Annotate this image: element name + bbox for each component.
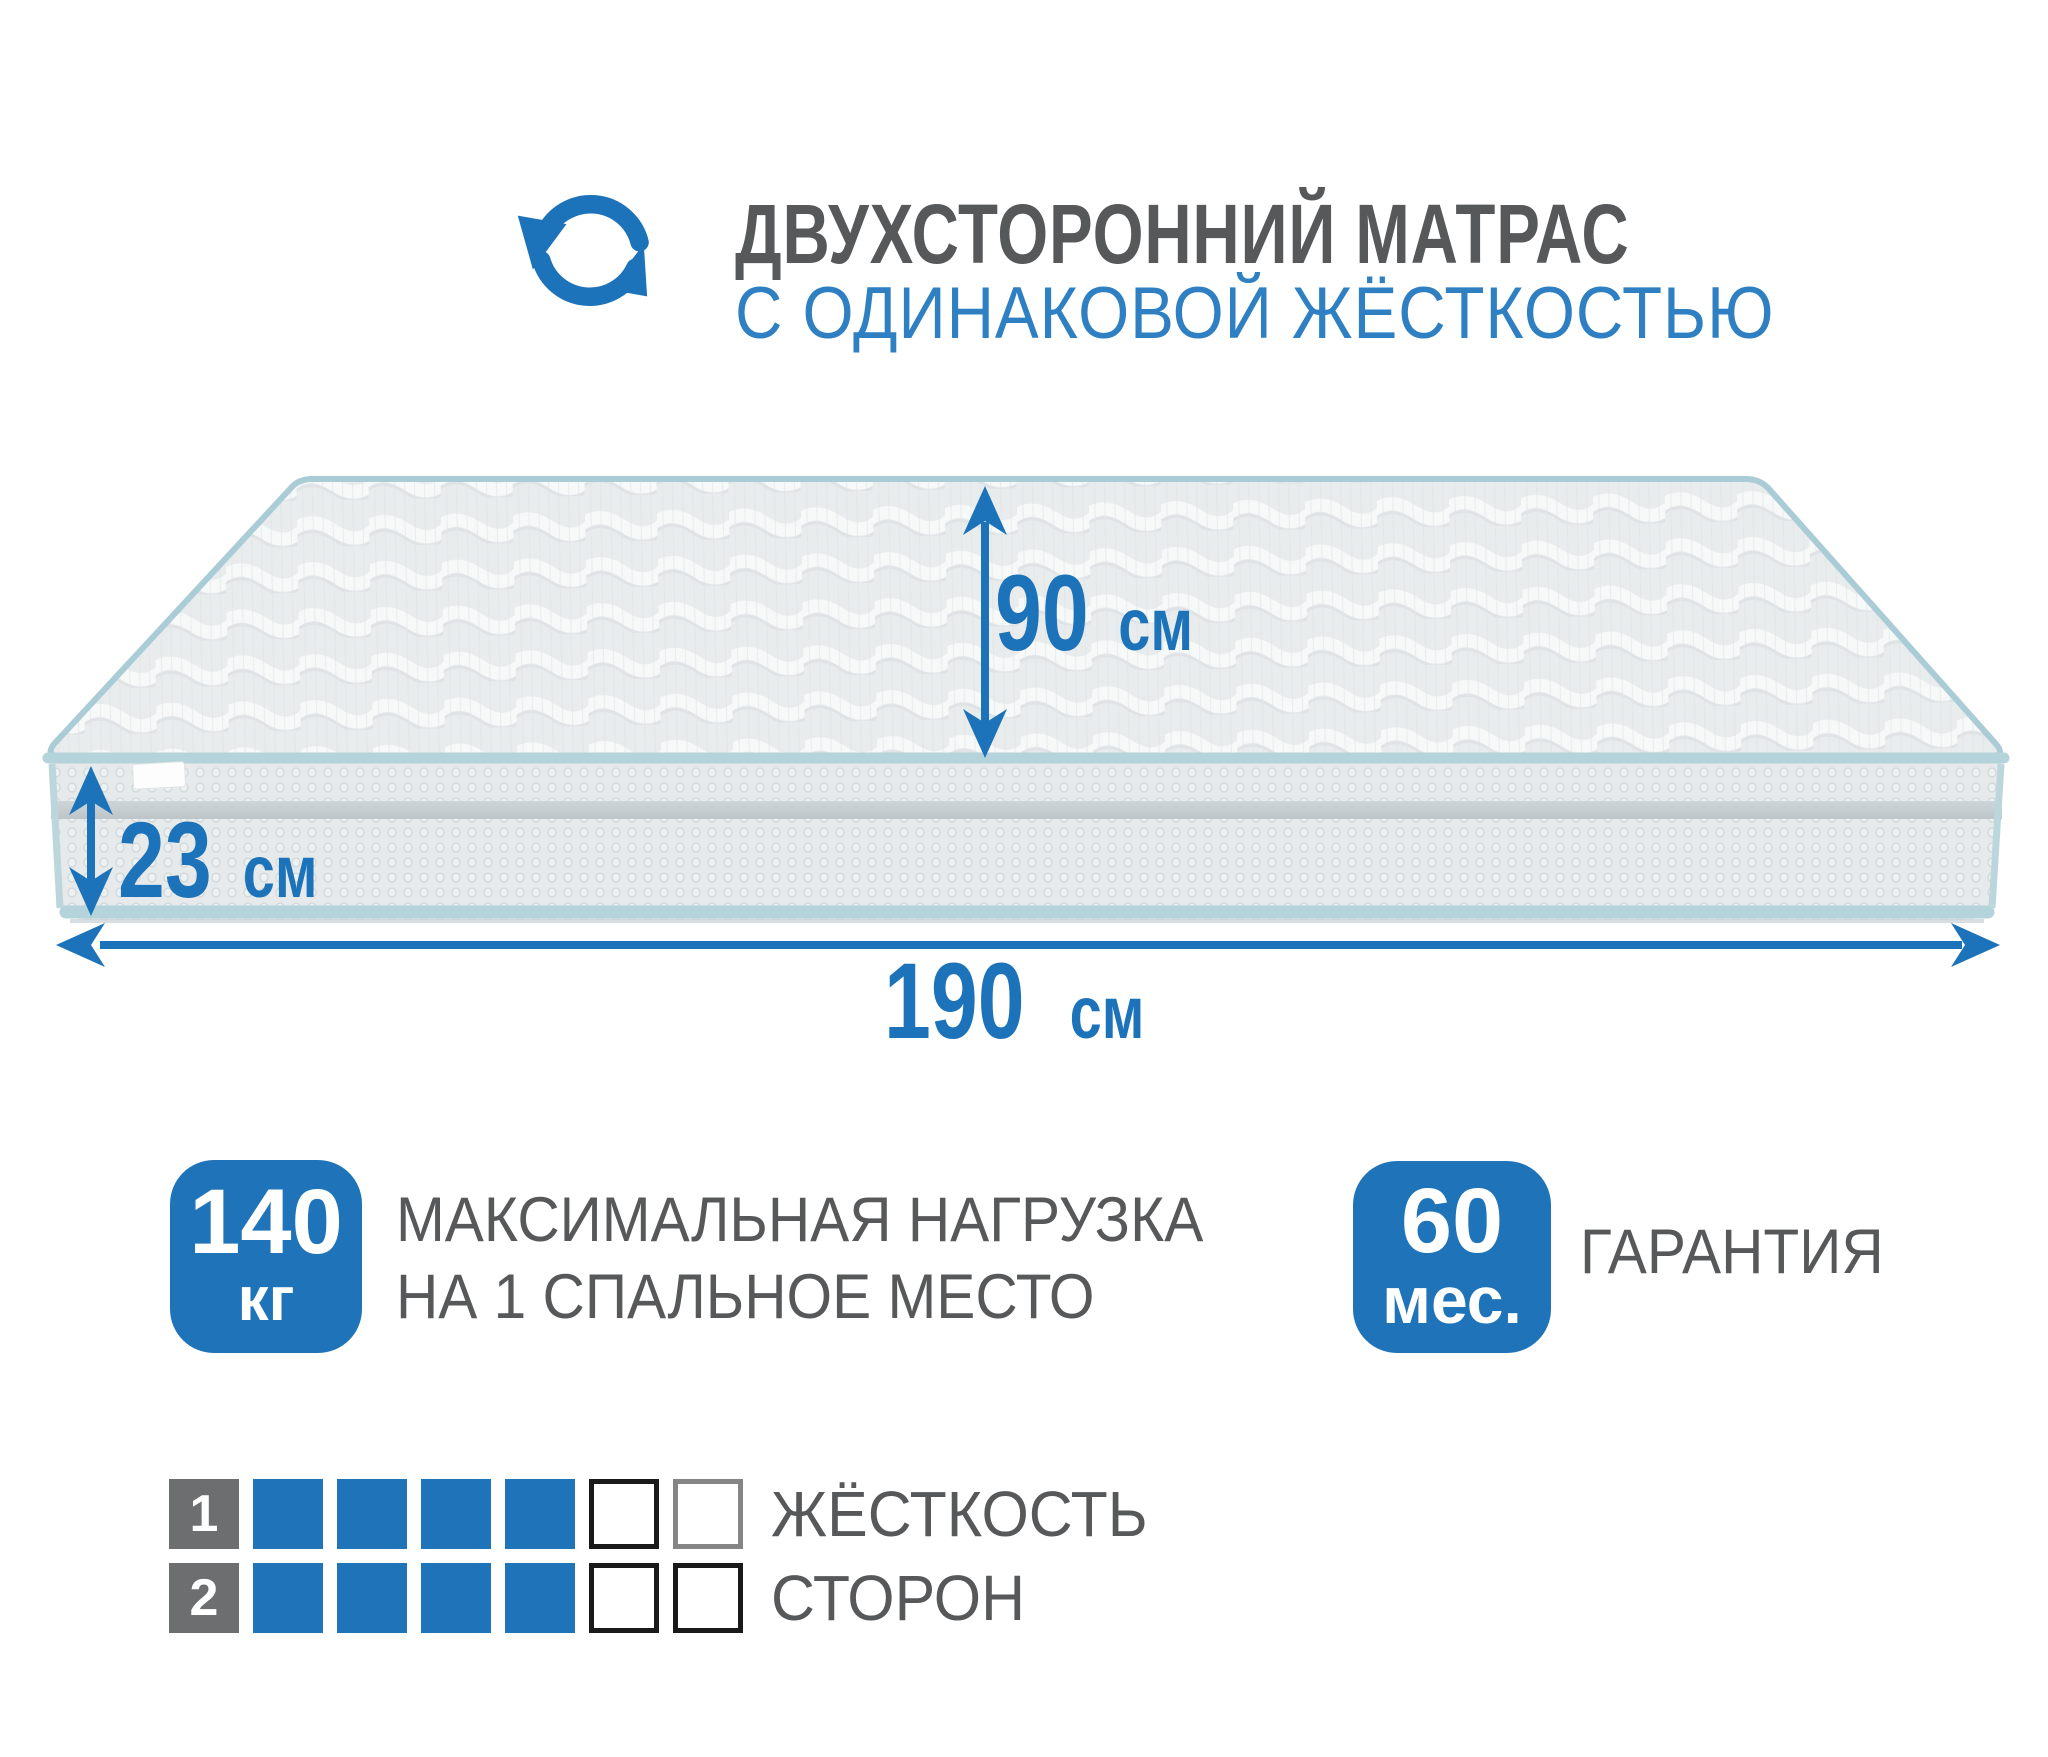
svg-text:190: 190	[884, 940, 1025, 1060]
max-load-value: 140	[189, 1182, 343, 1263]
firmness-squares	[253, 1563, 743, 1633]
svg-text:см: см	[243, 831, 318, 914]
firmness-square-filled	[421, 1479, 491, 1549]
firmness-row: 2	[169, 1563, 743, 1633]
firmness-squares	[253, 1479, 743, 1549]
warranty-unit: мес.	[1382, 1267, 1522, 1333]
page-title: ДВУХСТОРОННИЙ МАТРАС	[735, 186, 1630, 283]
firmness-square-filled	[253, 1479, 323, 1549]
firmness-square-empty	[673, 1563, 743, 1633]
svg-text:см: см	[1118, 584, 1193, 667]
mattress-label-tag	[132, 762, 185, 790]
max-load-badge: 140 кг	[170, 1160, 362, 1353]
max-load-label: МАКСИМАЛЬНАЯ НАГРУЗКА НА 1 СПАЛЬНОЕ МЕСТ…	[396, 1182, 1203, 1336]
svg-text:см: см	[1070, 972, 1145, 1055]
firmness-square-filled	[253, 1563, 323, 1633]
firmness-row-number: 2	[169, 1563, 239, 1633]
rotate-arrows-icon	[506, 172, 674, 340]
svg-text:23: 23	[118, 799, 212, 921]
max-load-label-line2: НА 1 СПАЛЬНОЕ МЕСТО	[396, 1259, 1203, 1336]
svg-text:90: 90	[995, 552, 1089, 674]
warranty-badge: 60 мес.	[1353, 1161, 1551, 1353]
firmness-square-filled	[421, 1563, 491, 1633]
firmness-row: 1	[169, 1479, 743, 1549]
firmness-label-line1: ЖЁСТКОСТЬ	[771, 1479, 1148, 1549]
firmness-square-filled	[505, 1563, 575, 1633]
max-load-label-line1: МАКСИМАЛЬНАЯ НАГРУЗКА	[396, 1182, 1203, 1259]
mattress-infographic: ДВУХСТОРОННИЙ МАТРАС С ОДИНАКОВОЙ ЖЁСТКО…	[0, 0, 2048, 1757]
firmness-square-empty	[589, 1479, 659, 1549]
warranty-value: 60	[1401, 1181, 1503, 1262]
length-arrow	[56, 923, 2000, 967]
firmness-square-filled	[337, 1563, 407, 1633]
mattress-band	[51, 801, 2002, 819]
firmness-square-filled	[505, 1479, 575, 1549]
firmness-square-empty	[589, 1563, 659, 1633]
length-dimension-label: 190 см	[884, 940, 1144, 1060]
page-subtitle: С ОДИНАКОВОЙ ЖЁСТКОСТЬЮ	[735, 272, 1774, 355]
firmness-label-line2: СТОРОН	[771, 1563, 1025, 1633]
mattress-illustration: 90 см 23 см 190 см	[0, 440, 2048, 1060]
max-load-unit: кг	[238, 1269, 295, 1331]
firmness-row-number: 1	[169, 1479, 239, 1549]
warranty-label: ГАРАНТИЯ	[1580, 1214, 1884, 1291]
mattress-front-face	[50, 760, 2003, 920]
firmness-square-empty	[673, 1479, 743, 1549]
firmness-square-filled	[337, 1479, 407, 1549]
